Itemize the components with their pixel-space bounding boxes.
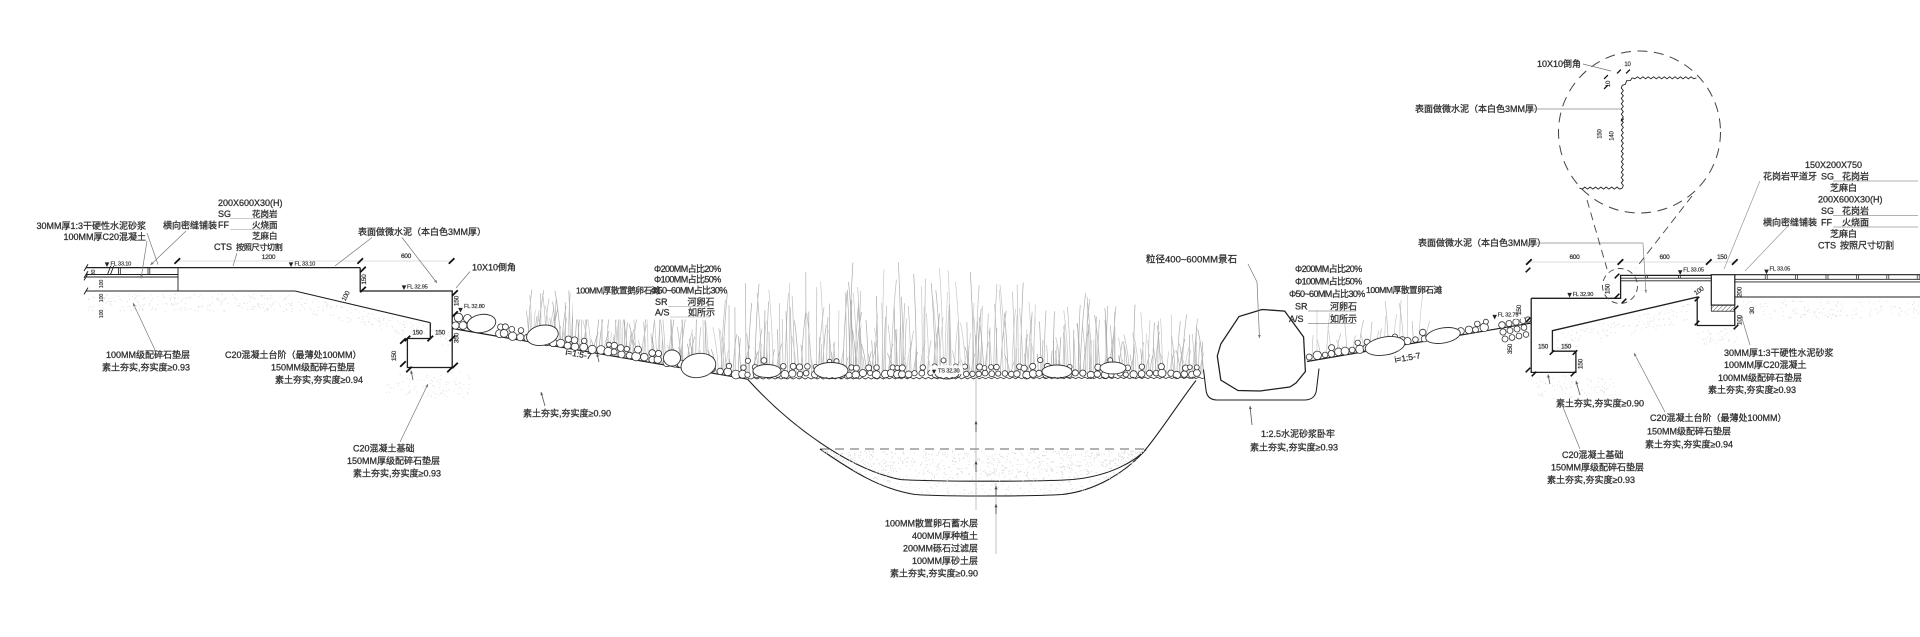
svg-text:200X600X30(H): 200X600X30(H) — [1818, 195, 1883, 205]
svg-text:100: 100 — [341, 290, 352, 303]
svg-text:CTS: CTS — [1818, 241, 1836, 251]
svg-text:素土夯实,夯实度≥0.93: 素土夯实,夯实度≥0.93 — [1250, 442, 1338, 453]
svg-text:SR: SR — [655, 297, 668, 307]
svg-text:FL 32.90: FL 32.90 — [1573, 292, 1594, 298]
svg-text:30: 30 — [91, 270, 97, 276]
svg-text:FL 32.80: FL 32.80 — [464, 304, 485, 310]
svg-text:10: 10 — [1624, 62, 1631, 68]
svg-text:素土夯实,夯实度≥0.93: 素土夯实,夯实度≥0.93 — [1547, 474, 1635, 485]
svg-text:Φ100MM占比50%: Φ100MM占比50% — [654, 274, 721, 285]
svg-text:素土夯实,夯实度≥0.90: 素土夯实,夯实度≥0.90 — [890, 568, 978, 579]
svg-text:A/S: A/S — [1289, 314, 1304, 324]
svg-text:200: 200 — [1737, 286, 1744, 297]
svg-text:140: 140 — [1610, 130, 1616, 140]
svg-text:150MM级配碎石垫层: 150MM级配碎石垫层 — [271, 362, 355, 373]
svg-text:150: 150 — [1605, 283, 1612, 294]
svg-text:150X200X750: 150X200X750 — [1805, 160, 1862, 170]
svg-text:200MM砾石过滤层: 200MM砾石过滤层 — [903, 543, 978, 554]
svg-text:河卵石: 河卵石 — [1330, 301, 1357, 312]
svg-text:30MM厚1:3干硬性水泥砂浆: 30MM厚1:3干硬性水泥砂浆 — [36, 220, 146, 231]
svg-text:100MM散置卵石蓄水层: 100MM散置卵石蓄水层 — [885, 518, 978, 529]
svg-text:花岗岩平道牙: 花岗岩平道牙 — [1763, 171, 1817, 182]
svg-text:100MM厚砂土层: 100MM厚砂土层 — [912, 555, 978, 566]
svg-text:芝麻白: 芝麻白 — [252, 231, 278, 241]
svg-text:Φ200MM占比20%: Φ200MM占比20% — [654, 263, 721, 274]
svg-text:SG: SG — [1821, 206, 1834, 216]
svg-text:150: 150 — [412, 330, 423, 337]
svg-text:150: 150 — [1516, 304, 1523, 315]
svg-text:C20混凝土基础: C20混凝土基础 — [1562, 449, 1624, 460]
svg-text:素土夯实,夯实度≥0.93: 素土夯实,夯实度≥0.93 — [353, 468, 441, 479]
svg-text:150: 150 — [391, 350, 398, 361]
svg-text:表面做微水泥（本白色3MM厚）: 表面做微水泥（本白色3MM厚） — [1418, 237, 1546, 248]
svg-text:河卵石: 河卵石 — [688, 296, 715, 307]
svg-text:FL 33.10: FL 33.10 — [295, 261, 316, 267]
svg-text:如所示: 如所示 — [688, 307, 715, 318]
svg-text:A/S: A/S — [655, 308, 670, 318]
svg-text:1:2.5水泥砂浆卧牢: 1:2.5水泥砂浆卧牢 — [1261, 428, 1335, 439]
svg-text:10X10倒角: 10X10倒角 — [472, 262, 516, 273]
svg-text:150: 150 — [1538, 344, 1549, 351]
svg-text:600: 600 — [1659, 254, 1670, 261]
svg-text:素土夯实,夯实度≥0.93: 素土夯实,夯实度≥0.93 — [102, 362, 190, 373]
svg-text:600: 600 — [401, 253, 412, 260]
svg-text:按照尺寸切割: 按照尺寸切割 — [1840, 240, 1894, 251]
svg-text:100MM厚散置鹅卵石滩: 100MM厚散置鹅卵石滩 — [576, 285, 661, 296]
svg-text:火烧面: 火烧面 — [1842, 217, 1869, 228]
svg-text:粒径400~600MM景石: 粒径400~600MM景石 — [1146, 254, 1237, 266]
svg-text:150: 150 — [1561, 344, 1572, 351]
svg-text:350: 350 — [454, 332, 461, 343]
svg-text:按照尺寸切割: 按照尺寸切割 — [236, 242, 282, 252]
svg-text:Φ50~60MM占比30%: Φ50~60MM占比30% — [651, 285, 727, 296]
svg-text:100MM厚散置卵石滩: 100MM厚散置卵石滩 — [1366, 284, 1443, 295]
svg-text:芝麻白: 芝麻白 — [1830, 182, 1857, 193]
svg-text:火烧面: 火烧面 — [252, 220, 278, 230]
svg-text:FL 33.05: FL 33.05 — [1770, 267, 1791, 273]
svg-text:FF: FF — [1821, 218, 1832, 228]
svg-text:FL 33.10: FL 33.10 — [111, 261, 132, 267]
svg-text:SG: SG — [1821, 172, 1834, 182]
svg-text:100: 100 — [99, 280, 105, 289]
svg-text:C20混凝土基础: C20混凝土基础 — [353, 443, 415, 454]
svg-text:200X600X30(H): 200X600X30(H) — [218, 198, 283, 208]
svg-text:FL 32.95: FL 32.95 — [407, 285, 428, 291]
svg-text:花岗岩: 花岗岩 — [1842, 171, 1869, 182]
svg-text:花岗岩: 花岗岩 — [1842, 205, 1869, 216]
svg-text:100: 100 — [99, 310, 105, 319]
svg-text:素土夯实,夯实度≥0.94: 素土夯实,夯实度≥0.94 — [1645, 439, 1733, 450]
svg-text:C20混凝土台阶（最薄处100MM）: C20混凝土台阶（最薄处100MM） — [225, 349, 362, 360]
svg-text:素土夯实,夯实度≥0.94: 素土夯实,夯实度≥0.94 — [275, 374, 363, 385]
svg-text:Φ200MM占比20%: Φ200MM占比20% — [1295, 263, 1362, 274]
svg-text:1200: 1200 — [262, 254, 276, 261]
svg-text:10X10倒角: 10X10倒角 — [1537, 58, 1581, 69]
svg-text:横向密缝铺装: 横向密缝铺装 — [1763, 217, 1817, 228]
svg-text:TS 32.30: TS 32.30 — [938, 369, 960, 375]
svg-text:350: 350 — [1507, 343, 1514, 354]
svg-text:横向密缝铺装: 横向密缝铺装 — [163, 220, 217, 231]
svg-text:C20混凝土台阶（最薄处100MM）: C20混凝土台阶（最薄处100MM） — [1650, 412, 1787, 423]
svg-text:100: 100 — [99, 294, 105, 303]
svg-text:FF: FF — [218, 220, 229, 230]
svg-text:150MM厚级配碎石垫层: 150MM厚级配碎石垫层 — [347, 455, 440, 466]
svg-text:如所示: 如所示 — [1330, 313, 1357, 324]
svg-text:150: 150 — [361, 274, 368, 285]
svg-text:素土夯实,夯实度≥0.90: 素土夯实,夯实度≥0.90 — [523, 408, 611, 419]
svg-text:Φ100MM占比50%: Φ100MM占比50% — [1295, 276, 1362, 287]
svg-text:100: 100 — [1693, 285, 1706, 297]
svg-text:400MM厚种植土: 400MM厚种植土 — [912, 530, 978, 541]
svg-text:CTS: CTS — [214, 242, 232, 252]
svg-text:600: 600 — [1569, 254, 1580, 261]
svg-text:表面做微水泥（本白色3MM厚）: 表面做微水泥（本白色3MM厚） — [358, 226, 486, 237]
svg-text:100MM级配碎石垫层: 100MM级配碎石垫层 — [106, 349, 190, 360]
svg-text:素土夯实,夯实度≥0.93: 素土夯实,夯实度≥0.93 — [1708, 384, 1796, 395]
svg-text:Φ50~60MM占比30%: Φ50~60MM占比30% — [1289, 288, 1365, 299]
svg-text:150: 150 — [1598, 128, 1604, 138]
svg-text:SG: SG — [218, 209, 231, 219]
svg-text:素土夯实,夯实度≥0.90: 素土夯实,夯实度≥0.90 — [1556, 398, 1644, 409]
svg-text:150: 150 — [1578, 358, 1585, 369]
svg-text:i=1:5-7: i=1:5-7 — [1394, 350, 1422, 364]
svg-text:30: 30 — [1749, 307, 1756, 314]
svg-text:150MM厚级配碎石垫层: 150MM厚级配碎石垫层 — [1551, 462, 1644, 473]
svg-text:100MM厚C20混凝土: 100MM厚C20混凝土 — [63, 231, 146, 242]
svg-text:150: 150 — [435, 330, 446, 337]
svg-text:100MM级配碎石垫层: 100MM级配碎石垫层 — [1718, 372, 1802, 383]
svg-text:表面做微水泥（本白色3MM厚）: 表面做微水泥（本白色3MM厚） — [1415, 103, 1543, 114]
svg-text:150: 150 — [1717, 254, 1728, 261]
svg-text:SR: SR — [1295, 302, 1308, 312]
svg-text:30MM厚1:3干硬性水泥砂浆: 30MM厚1:3干硬性水泥砂浆 — [1724, 347, 1834, 358]
svg-text:芝麻白: 芝麻白 — [1830, 228, 1857, 239]
svg-text:100MM厚C20混凝土: 100MM厚C20混凝土 — [1724, 359, 1807, 370]
svg-text:花岗岩: 花岗岩 — [252, 209, 278, 219]
svg-text:150MM级配碎石垫层: 150MM级配碎石垫层 — [1647, 426, 1731, 437]
svg-text:150: 150 — [454, 295, 461, 306]
svg-text:FL 33.05: FL 33.05 — [1683, 268, 1704, 274]
